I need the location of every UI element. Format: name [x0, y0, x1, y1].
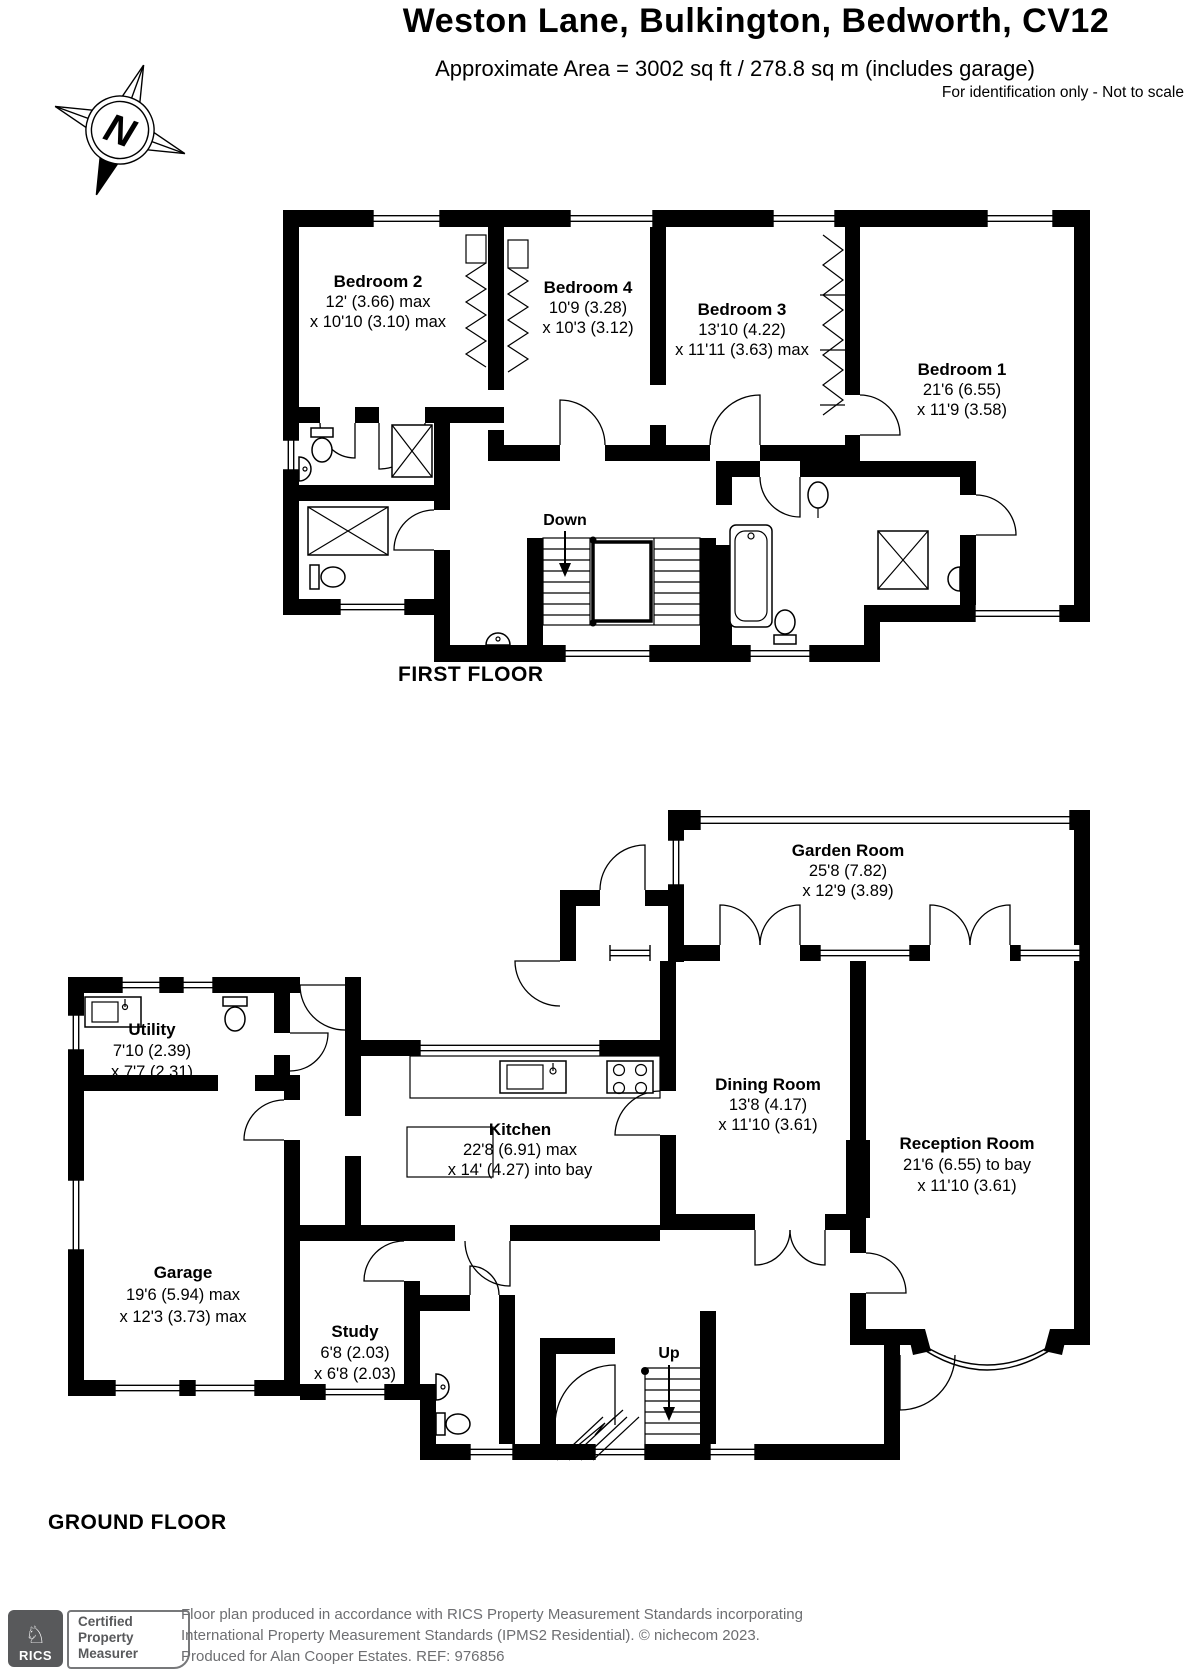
room-dims-dining-room-1: 13'8 (4.17) — [729, 1096, 807, 1114]
stairs-up-label: Up — [658, 1345, 680, 1362]
room-dims-bedroom-4-1: 10'9 (3.28) — [549, 299, 627, 317]
room-dims-utility-1: 7'10 (2.39) — [113, 1042, 191, 1060]
room-dims-bedroom-1-1: 21'6 (6.55) — [923, 381, 1001, 399]
cert-line-2: Property — [78, 1630, 188, 1646]
room-dims-study-2: x 6'8 (2.03) — [314, 1365, 396, 1383]
room-dims-bedroom-2-1: 12' (3.66) max — [326, 293, 432, 311]
first-floor-plan: Bedroom 2 12' (3.66) max x 10'10 (3.10) … — [260, 195, 1100, 705]
ground-floor-title: GROUND FLOOR — [48, 1511, 227, 1535]
room-label-garage: Garage — [154, 1263, 213, 1282]
room-label-bedroom-4: Bedroom 4 — [544, 278, 633, 297]
footer-line-2: International Property Measurement Stand… — [181, 1625, 821, 1646]
compass-rose-icon: N — [45, 55, 195, 205]
floorplan-page: Weston Lane, Bulkington, Bedworth, CV12 … — [0, 0, 1192, 1672]
footer-line-1: Floor plan produced in accordance with R… — [181, 1604, 821, 1625]
room-dims-garage-1: 19'6 (5.94) max — [126, 1286, 241, 1304]
room-dims-bedroom-4-2: x 10'3 (3.12) — [542, 319, 633, 337]
room-label-reception-room: Reception Room — [899, 1134, 1034, 1153]
scale-disclaimer: For identification only - Not to scale — [942, 84, 1184, 102]
stairs-down — [543, 531, 700, 627]
room-dims-reception-room-1: 21'6 (6.55) to bay — [903, 1156, 1032, 1174]
stairs-down-label: Down — [543, 512, 587, 529]
room-dims-dining-room-2: x 11'10 (3.61) — [718, 1116, 817, 1134]
footer-line-3: Produced for Alan Cooper Estates. REF: 9… — [181, 1646, 821, 1667]
room-label-utility: Utility — [128, 1020, 176, 1039]
footer-disclaimer: Floor plan produced in accordance with R… — [181, 1604, 821, 1667]
room-label-garden-room: Garden Room — [792, 841, 904, 860]
room-label-study: Study — [331, 1322, 379, 1341]
room-dims-garage-2: x 12'3 (3.73) max — [120, 1308, 248, 1326]
cert-line-3: Measurer — [78, 1646, 188, 1662]
room-dims-reception-room-2: x 11'10 (3.61) — [917, 1177, 1016, 1195]
room-label-kitchen: Kitchen — [489, 1120, 551, 1139]
ground-floor-plan: Garden Room 25'8 (7.82) x 12'9 (3.89) Ut… — [55, 745, 1115, 1465]
room-dims-utility-2: x 7'7 (2.31) — [111, 1063, 193, 1081]
page-title: Weston Lane, Bulkington, Bedworth, CV12 — [320, 2, 1192, 41]
room-label-bedroom-1: Bedroom 1 — [918, 360, 1007, 379]
area-subtitle: Approximate Area = 3002 sq ft / 278.8 sq… — [340, 56, 1130, 82]
room-dims-garden-room-1: 25'8 (7.82) — [809, 862, 887, 880]
rics-wordmark: RICS — [19, 1648, 52, 1667]
cert-line-1: Certified — [78, 1614, 188, 1630]
room-label-bedroom-2: Bedroom 2 — [334, 272, 423, 291]
room-dims-study-1: 6'8 (2.03) — [320, 1344, 389, 1362]
room-dims-bedroom-3-1: 13'10 (4.22) — [698, 321, 786, 339]
rics-logo: ♘ RICS — [8, 1610, 63, 1667]
room-dims-kitchen-2: x 14' (4.27) into bay — [448, 1161, 593, 1179]
room-dims-bedroom-3-2: x 11'11 (3.63) max — [675, 341, 809, 359]
room-dims-kitchen-1: 22'8 (6.91) max — [463, 1141, 578, 1159]
first-floor-title: FIRST FLOOR — [398, 663, 544, 687]
room-label-bedroom-3: Bedroom 3 — [698, 300, 787, 319]
room-dims-bedroom-2-2: x 10'10 (3.10) max — [310, 313, 447, 331]
room-dims-bedroom-1-2: x 11'9 (3.58) — [917, 401, 1007, 419]
rics-lion-icon: ♘ — [25, 1624, 47, 1648]
room-dims-garden-room-2: x 12'9 (3.89) — [802, 882, 893, 900]
certified-property-measurer-badge: Certified Property Measurer — [67, 1610, 190, 1669]
room-label-dining-room: Dining Room — [715, 1075, 821, 1094]
